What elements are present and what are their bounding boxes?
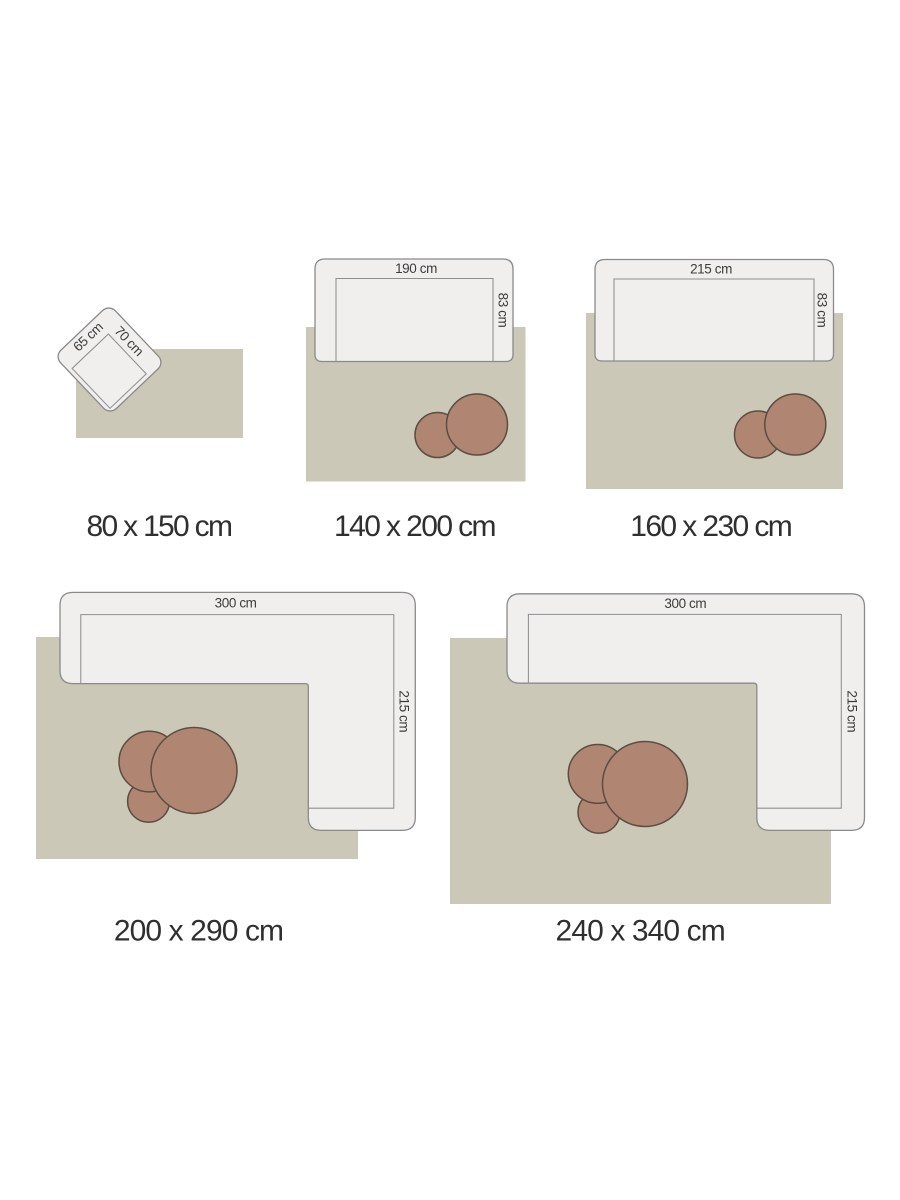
svg-text:300 cm: 300 cm — [664, 596, 706, 611]
svg-text:140 x 200 cm: 140 x 200 cm — [334, 510, 496, 543]
svg-text:83 cm: 83 cm — [496, 293, 511, 328]
svg-text:215 cm: 215 cm — [845, 690, 860, 732]
svg-text:300 cm: 300 cm — [215, 596, 257, 611]
svg-text:80 x 150 cm: 80 x 150 cm — [87, 510, 232, 543]
svg-text:83 cm: 83 cm — [815, 293, 830, 328]
svg-text:215 cm: 215 cm — [397, 690, 412, 732]
svg-text:240 x 340 cm: 240 x 340 cm — [556, 915, 725, 948]
svg-text:160 x 230 cm: 160 x 230 cm — [630, 510, 792, 543]
svg-text:190 cm: 190 cm — [395, 261, 437, 276]
svg-text:215 cm: 215 cm — [690, 262, 732, 277]
svg-text:200 x 290 cm: 200 x 290 cm — [114, 915, 283, 948]
